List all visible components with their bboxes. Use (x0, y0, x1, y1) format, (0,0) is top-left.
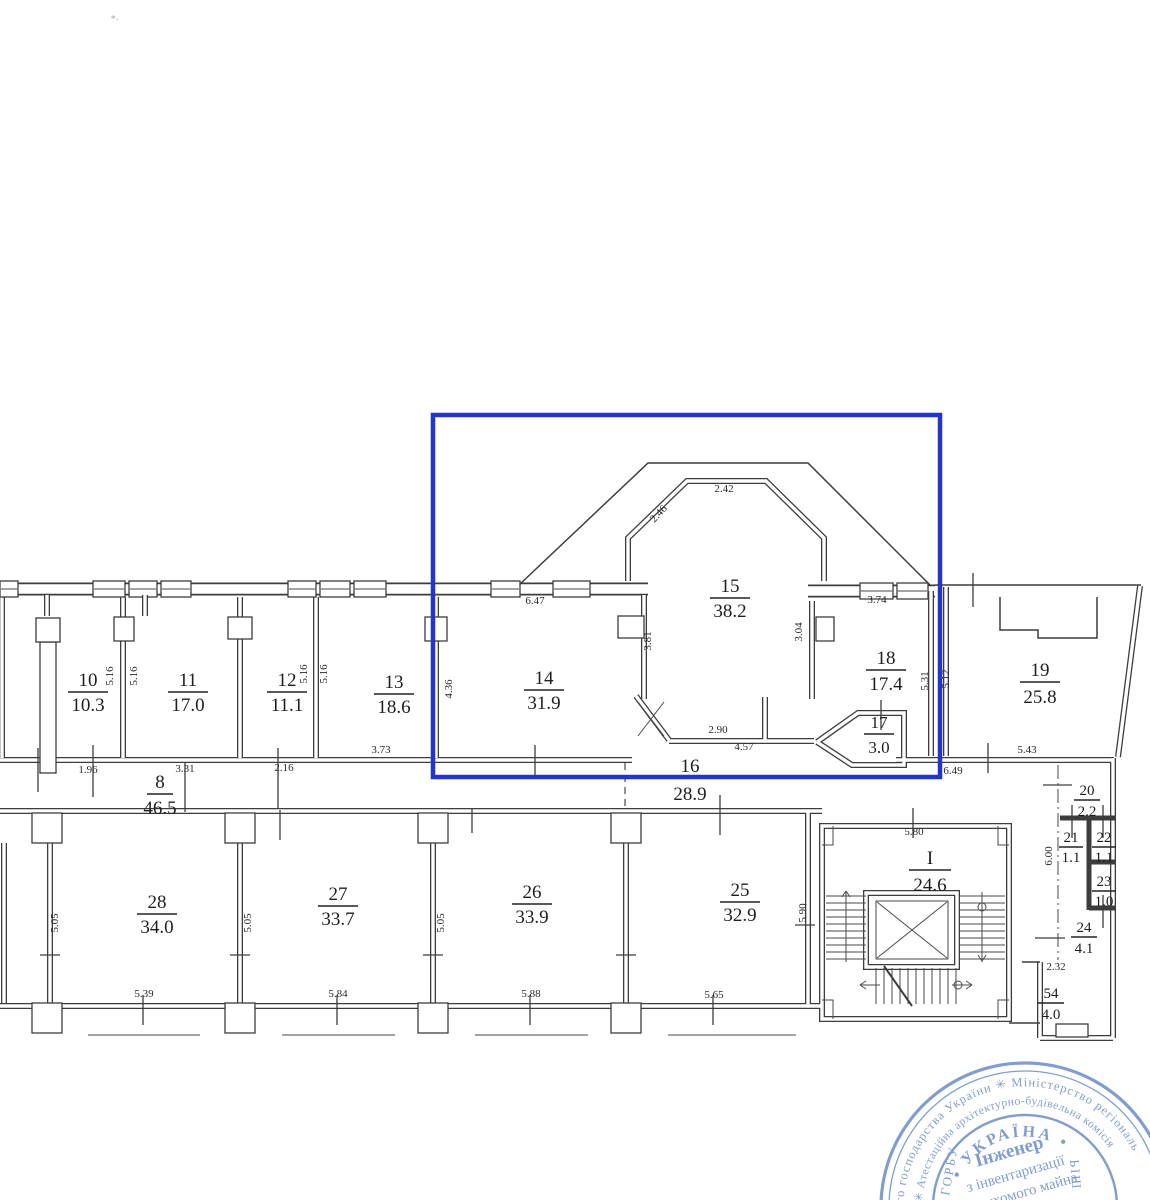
room-label-26: 2633.9 (515, 882, 548, 928)
room-number: 15 (721, 576, 740, 597)
room-label-13: 1318.6 (377, 672, 410, 718)
room-label-25: 2532.9 (723, 880, 756, 926)
room-number: 28 (148, 892, 167, 913)
room-label-8: 846.5 (143, 772, 176, 819)
walls (0, 481, 1140, 1038)
room-area: 4.0 (1042, 1007, 1061, 1023)
room-area: 38.2 (713, 601, 746, 622)
room-number: 10 (79, 670, 98, 691)
dim-label: 6.00 (1043, 846, 1055, 866)
dim-label: 2.90 (708, 724, 728, 736)
room-area: 11.1 (271, 695, 304, 716)
dim-label: 5.88 (521, 988, 541, 1000)
room-area: 17.4 (869, 674, 903, 695)
room-area: 18.6 (377, 697, 410, 718)
dim-label: 6.47 (525, 595, 545, 607)
dim-label: 5.90 (797, 903, 809, 923)
radiator-room14 (618, 616, 644, 638)
dim-label: 5.31 (919, 671, 931, 690)
room-number: 24 (1077, 920, 1093, 936)
room-number: 21 (1064, 830, 1079, 846)
dim-label: 4.57 (734, 741, 754, 753)
room-label-15: 1538.2 (713, 576, 746, 622)
room-number: 26 (523, 882, 542, 903)
room-label-21: 211.1 (1062, 830, 1081, 866)
room-number: 23 (1097, 874, 1112, 890)
dim-label: 3.73 (371, 744, 391, 756)
room-number: I (927, 848, 933, 869)
staircase (826, 891, 1005, 1006)
room-label-18: 1817.4 (869, 648, 903, 695)
room-label-27: 2733.7 (321, 884, 354, 930)
stamp-fragment-right: ЬІШ (1067, 1159, 1085, 1191)
room-area: 25.8 (1023, 687, 1056, 708)
room-area: 24.6 (913, 875, 946, 896)
room-number: 27 (329, 884, 348, 905)
room-number: 13 (385, 672, 404, 693)
dim-label: 5.16 (298, 664, 310, 684)
room-area: 31.9 (527, 693, 560, 714)
room-number: 16 (681, 756, 700, 777)
dim-label: 5.80 (904, 826, 924, 838)
room-number: 14 (535, 668, 555, 689)
room-number: 8 (155, 772, 165, 793)
room-number: 22 (1097, 830, 1112, 846)
room-number: 12 (278, 670, 297, 691)
room-number: 25 (731, 880, 750, 901)
room-number: 19 (1031, 660, 1050, 681)
room-label-20: 202.2 (1078, 783, 1097, 820)
room-label-16: 1628.9 (673, 756, 706, 805)
room-label-stairwell: I24.6 (913, 848, 946, 896)
floorplan-svg: 1010.3 1117.0 1211.1 1318.6 1431.9 1538.… (0, 0, 1150, 1200)
room-area: 28.9 (673, 784, 706, 805)
room-area: 1.1 (1095, 850, 1114, 866)
dim-label: 3.81 (642, 631, 654, 650)
room-number: 11 (179, 670, 197, 691)
dim-label: 1.96 (78, 764, 98, 776)
room-label-28: 2834.0 (140, 892, 173, 938)
room-area: 4.1 (1075, 941, 1094, 957)
dim-label: 2.46 (648, 502, 670, 525)
dim-label: 2.16 (274, 762, 294, 774)
scan-artifact: ∗. (110, 12, 118, 22)
dim-label: 3.04 (793, 622, 805, 642)
dim-label: 6.49 (943, 765, 963, 777)
room-label-11: 1117.0 (171, 670, 204, 716)
dim-label: 5.05 (49, 913, 61, 933)
radiator-room18 (816, 617, 834, 641)
dim-label: 5.05 (435, 913, 447, 933)
dimension-labels: 5.16 5.16 5.16 5.16 1.96 3.31 2.16 3.73 … (49, 483, 1066, 1001)
room-area: 33.9 (515, 907, 548, 928)
room-area: 33.7 (321, 909, 354, 930)
dim-label: 3.31 (175, 763, 194, 775)
dim-label: 5.16 (128, 666, 140, 686)
room-label-14: 1431.9 (527, 668, 560, 714)
dim-label: 5.65 (704, 989, 724, 1001)
dim-label: 5.05 (242, 913, 254, 933)
dim-label: 5.39 (134, 988, 154, 1000)
dim-label: 5.43 (1017, 744, 1037, 756)
room-number: 17 (871, 713, 889, 732)
room-area: 34.0 (140, 917, 173, 938)
room-number: 18 (877, 648, 896, 669)
room-area: 46.5 (143, 798, 176, 819)
vent-shaft (36, 618, 60, 773)
room-area: 32.9 (723, 905, 756, 926)
room-number: 20 (1080, 783, 1095, 799)
door-room54 (1056, 1024, 1088, 1037)
dim-label: 4.36 (443, 679, 455, 699)
dim-label: 5.16 (318, 664, 330, 684)
notary-stamp: ного господарства України ✳ Міністерство… (847, 1029, 1150, 1200)
dim-label: 2.32 (1046, 961, 1065, 973)
room-label-54: 544.0 (1042, 986, 1061, 1023)
room-label-24: 244.1 (1075, 920, 1094, 957)
dim-label: 5.84 (328, 988, 348, 1000)
room-area: 1.0 (1095, 894, 1114, 910)
dim-label: 2.42 (714, 483, 733, 495)
room-number: 54 (1044, 986, 1060, 1002)
room-area: 10.3 (71, 695, 104, 716)
room-area: 1.1 (1062, 850, 1081, 866)
room-label-10: 1010.3 (71, 670, 104, 716)
room-area: 2.2 (1078, 804, 1097, 820)
room-area: 17.0 (171, 695, 204, 716)
dim-label: 5.16 (104, 666, 116, 686)
room-label-17: 173.0 (868, 713, 889, 757)
floor-plan-page: 1010.3 1117.0 1211.1 1318.6 1431.9 1538.… (0, 0, 1150, 1200)
room-label-19: 1925.8 (1023, 660, 1056, 708)
dim-label: 3.74 (867, 594, 887, 606)
thin-lines (88, 463, 1141, 1035)
room-area: 3.0 (868, 738, 889, 757)
